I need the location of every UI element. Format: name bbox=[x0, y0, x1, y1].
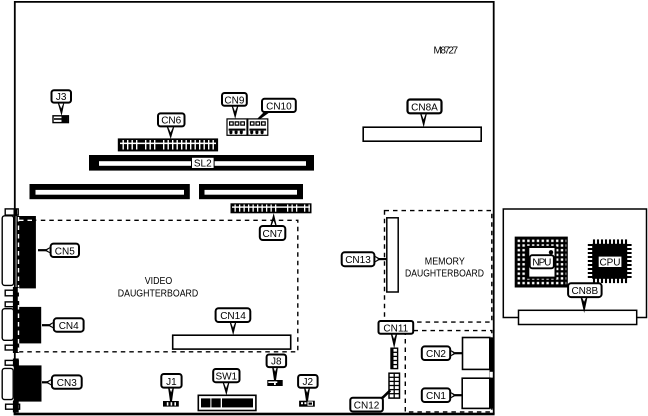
svg-text:SW1: SW1 bbox=[215, 372, 237, 383]
svg-text:CN12: CN12 bbox=[354, 401, 380, 412]
svg-text:M8727: M8727 bbox=[434, 46, 459, 57]
svg-text:J8: J8 bbox=[271, 357, 282, 368]
svg-text:CN8A: CN8A bbox=[411, 103, 438, 114]
svg-text:CN6: CN6 bbox=[161, 116, 181, 127]
svg-text:CN9: CN9 bbox=[224, 95, 244, 106]
svg-text:CPU: CPU bbox=[600, 257, 621, 268]
svg-text:CN10: CN10 bbox=[266, 101, 292, 112]
svg-text:SL2: SL2 bbox=[194, 158, 212, 169]
svg-text:CN8B: CN8B bbox=[571, 286, 598, 297]
svg-text:J1: J1 bbox=[166, 377, 177, 388]
svg-text:VIDEO: VIDEO bbox=[145, 276, 173, 287]
svg-text:J2: J2 bbox=[303, 377, 314, 388]
svg-text:J3: J3 bbox=[56, 92, 67, 103]
svg-text:CN2: CN2 bbox=[426, 349, 446, 360]
svg-text:NPU: NPU bbox=[532, 258, 551, 269]
svg-text:CN1: CN1 bbox=[426, 391, 446, 402]
svg-text:CN3: CN3 bbox=[57, 378, 77, 389]
svg-text:MEMORY: MEMORY bbox=[425, 256, 465, 267]
svg-text:CN5: CN5 bbox=[55, 246, 75, 257]
svg-text:CN11: CN11 bbox=[383, 323, 408, 334]
svg-text:DAUGHTERBOARD: DAUGHTERBOARD bbox=[405, 269, 484, 280]
svg-text:DAUGHTERBOARD: DAUGHTERBOARD bbox=[118, 288, 199, 299]
svg-text:CN13: CN13 bbox=[345, 255, 371, 266]
svg-text:CN7: CN7 bbox=[262, 229, 282, 240]
svg-text:CN4: CN4 bbox=[59, 321, 79, 332]
svg-text:CN14: CN14 bbox=[220, 311, 246, 322]
